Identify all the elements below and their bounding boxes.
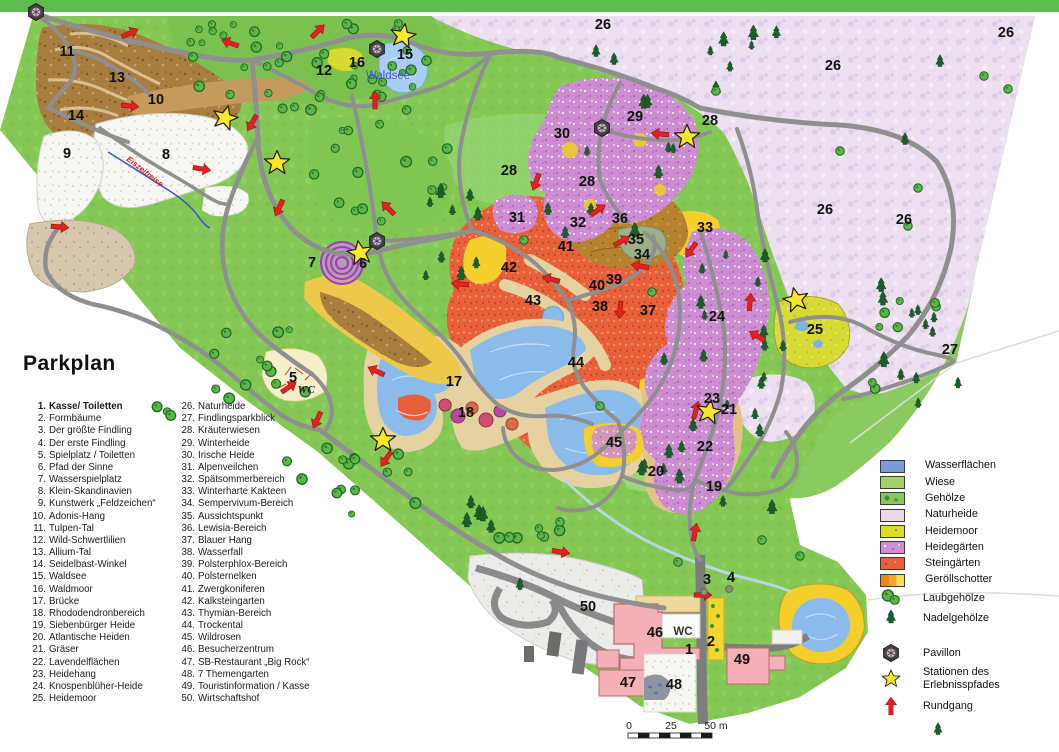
legend-item-15: 15.Waldsee — [28, 571, 156, 583]
top-green-band — [0, 0, 1059, 12]
laub-tree-icon — [315, 93, 324, 102]
yard-building — [524, 646, 534, 662]
map-number-11: 11 — [59, 44, 74, 60]
map-number-42: 42 — [501, 260, 517, 276]
heidegaerten-swatch — [880, 541, 905, 554]
laub-tree-icon — [322, 443, 332, 453]
laub-tree-icon — [332, 488, 342, 498]
legend-item-49: 49.Touristinformation / Kasse — [177, 681, 309, 693]
legend-item-33: 33.Winterharte Kakteen — [177, 486, 309, 498]
gehoelze-swatch — [880, 492, 905, 505]
map-number-26: 26 — [825, 58, 841, 74]
map-number-45: 45 — [606, 435, 622, 451]
map-number-35: 35 — [628, 232, 644, 248]
map-number-16: 16 — [349, 55, 365, 71]
map-number-20: 20 — [648, 464, 664, 480]
findling-stone — [701, 589, 708, 596]
laub-tree-icon — [331, 144, 339, 152]
legend-item-25: 25.Heidemoor — [28, 693, 156, 705]
laub-tree-icon — [251, 42, 261, 52]
laub-tree-icon — [241, 380, 251, 390]
laub-tree-icon — [220, 32, 227, 39]
laub-tree-icon — [409, 83, 416, 90]
legend-item-40: 40.Polsternelken — [177, 571, 309, 583]
legend-rundgang: Rundgang — [880, 695, 1056, 717]
nadel-icon — [880, 608, 902, 628]
laub-tree-icon — [353, 167, 363, 177]
laub-tree-icon — [208, 21, 215, 28]
legend-item-6: 6.Pfad der Sinne — [28, 462, 156, 474]
map-number-41: 41 — [558, 239, 574, 255]
laub-tree-icon — [896, 297, 903, 304]
legend-item-12: 12.Wild-Schwertlilien — [28, 535, 156, 547]
map-number-31: 31 — [509, 210, 525, 226]
laub-tree-icon — [306, 105, 316, 115]
legend-item-47: 47.SB-Restaurant „Big Rock“ — [177, 657, 309, 669]
pond-west-island — [398, 394, 431, 420]
map-number-38: 38 — [592, 299, 608, 315]
laub-tree-icon — [554, 525, 564, 535]
nadel-tree-icon — [934, 723, 942, 735]
map-number-46: 46 — [647, 625, 663, 641]
map-number-47: 47 — [620, 675, 636, 691]
laub-tree-icon — [535, 525, 542, 532]
scale-bar-segment — [649, 733, 660, 738]
legend-item-48: 48.7 Themengarten — [177, 669, 309, 681]
legend-item-16: 16.Waldmoor — [28, 584, 156, 596]
map-number-13: 13 — [109, 70, 125, 86]
legend-wiese: Wiese — [880, 474, 1056, 490]
legend-item-27: 27.Findlingsparkblick — [177, 413, 309, 425]
laub-tree-icon — [410, 498, 421, 509]
map-number-26: 26 — [817, 202, 833, 218]
legend-item-8: 8.Klein-Skandinavien — [28, 486, 156, 498]
legend-item-11: 11.Tulpen-Tal — [28, 523, 156, 535]
map-number-19: 19 — [706, 479, 722, 495]
scale-bar-segment — [639, 733, 650, 738]
map-number-49: 49 — [734, 652, 750, 668]
legend-pavillon: Pavillon — [880, 643, 1056, 663]
water-swatch — [880, 460, 905, 473]
laub-tree-icon — [286, 326, 292, 332]
laub-tree-icon — [320, 49, 329, 58]
laub-tree-icon — [1004, 85, 1012, 93]
laub-tree-icon — [401, 156, 412, 167]
map-number-28: 28 — [702, 113, 718, 129]
legend-item-26: 26.Naturheide — [177, 401, 309, 413]
map-number-23: 23 — [704, 391, 720, 407]
laub-tree-icon — [876, 323, 883, 330]
laub-tree-icon — [210, 349, 219, 358]
map-number-15: 15 — [397, 47, 413, 63]
laub-tree-icon — [980, 72, 988, 80]
map-number-9: 9 — [63, 146, 71, 162]
legend-item-5: 5.Spielplatz / Toiletten — [28, 450, 156, 462]
laub-tree-icon — [226, 90, 234, 98]
wc-label-center: WC — [673, 626, 692, 638]
laub-tree-icon — [494, 533, 505, 544]
map-number-26: 26 — [896, 212, 912, 228]
laub-tree-icon — [428, 157, 436, 165]
map-number-28: 28 — [579, 174, 595, 190]
map-number-2: 2 — [707, 634, 715, 650]
laub-tree-icon — [383, 468, 391, 476]
laub-tree-icon — [674, 558, 682, 566]
laub-tree-icon — [276, 43, 282, 49]
laub-tree-icon — [282, 52, 292, 62]
building-annex — [769, 656, 785, 670]
laub-tree-icon — [880, 308, 889, 317]
laub-tree-icon — [209, 27, 216, 34]
legend-item-13: 13.Allium-Tal — [28, 547, 156, 559]
legend-item-30: 30.Irische Heide — [177, 450, 309, 462]
legend-item-3: 3.Der größte Findling — [28, 425, 156, 437]
laub-tree-icon — [712, 87, 720, 95]
scale-end: 50 m — [704, 720, 728, 732]
scale-bar-segment — [702, 733, 713, 738]
legend-gehoelze: Gehölze — [880, 491, 1056, 507]
map-number-6: 6 — [359, 256, 367, 272]
map-number-25: 25 — [807, 322, 823, 338]
nadel-tree-icon — [954, 377, 962, 388]
wc-label-playground: WC — [297, 384, 315, 396]
legend-heidegaerten: Heidegärten — [880, 539, 1056, 555]
laub-tree-icon — [250, 27, 260, 37]
laub-tree-icon — [914, 184, 922, 192]
legend-item-46: 46.Besucherzentrum — [177, 644, 309, 656]
laub-tree-icon — [442, 144, 452, 154]
laub-tree-icon — [194, 81, 204, 91]
waldsee-label: Waldsee — [366, 70, 410, 82]
map-number-28: 28 — [501, 163, 517, 179]
map-number-22: 22 — [697, 439, 713, 455]
laub-tree-icon — [166, 411, 176, 421]
laub-tree-icon — [265, 89, 272, 96]
laub-tree-icon — [893, 323, 902, 332]
pavillon-icon — [880, 643, 902, 663]
legend-item-31: 31.Alpenveilchen — [177, 462, 309, 474]
pavilion-icon — [370, 41, 385, 58]
map-number-14: 14 — [68, 108, 84, 124]
legend-item-2: 2.Formbäume — [28, 413, 156, 425]
map-number-10: 10 — [148, 92, 164, 108]
map-number-3: 3 — [703, 572, 711, 588]
pavilion-icon — [595, 120, 610, 137]
laub-tree-icon — [241, 64, 248, 71]
legend-item-36: 36.Lewisia-Bereich — [177, 523, 309, 535]
parking-lot — [772, 630, 802, 644]
legend-col-1: 1.Kasse/ Toiletten2.Formbäume3.Der größt… — [28, 401, 156, 705]
map-number-21: 21 — [721, 402, 737, 418]
laub-tree-icon — [199, 40, 205, 46]
legend-item-4: 4.Der erste Findling — [28, 438, 156, 450]
map-number-30: 30 — [554, 126, 570, 142]
laub-tree-icon — [275, 59, 283, 67]
map-number-24: 24 — [709, 309, 725, 325]
laub-tree-icon — [537, 532, 544, 539]
map-number-39: 39 — [606, 272, 622, 288]
laub-tree-icon — [342, 19, 351, 28]
laub-tree-icon — [212, 385, 220, 393]
laub-tree-icon — [344, 126, 352, 134]
legend-item-42: 42.Kalksteingarten — [177, 596, 309, 608]
laub-tree-icon — [758, 536, 766, 544]
legend-item-9: 9.Kunstwerk „Feldzeichen“ — [28, 498, 156, 510]
legend-steingaerten: Steingärten — [880, 556, 1056, 572]
rundgang-icon — [880, 696, 902, 716]
legend-item-23: 23.Heidehang — [28, 669, 156, 681]
map-number-33: 33 — [697, 220, 713, 236]
legend-item-14: 14.Seidelbast-Winkel — [28, 559, 156, 571]
laub-tree-icon — [402, 106, 411, 115]
map-number-26: 26 — [595, 17, 611, 33]
laub-tree-icon — [291, 103, 299, 111]
scale-mid: 25 — [665, 720, 677, 732]
laub-tree-icon — [189, 52, 198, 61]
legend-nadel: Nadelgehölze — [880, 608, 1056, 628]
geroellschotter-swatch — [880, 574, 905, 587]
laub-tree-icon — [351, 486, 360, 495]
map-number-27: 27 — [942, 342, 958, 358]
map-number-40: 40 — [589, 278, 605, 294]
legend-item-41: 41.Zwergkoniferen — [177, 584, 309, 596]
page-title: Parkplan — [23, 352, 116, 376]
legend-item-35: 35.Aussichtspunkt — [177, 511, 309, 523]
map-number-29: 29 — [627, 109, 643, 125]
laub-tree-icon — [263, 62, 271, 70]
laub-tree-icon — [347, 79, 357, 89]
laub-tree-icon — [422, 56, 431, 65]
map-number-12: 12 — [316, 63, 332, 79]
map-number-26: 26 — [998, 25, 1014, 41]
map-number-4: 4 — [727, 570, 735, 586]
legend-item-10: 10.Adonis-Hang — [28, 511, 156, 523]
park-map-page: 1234567891011121314151617181920212223242… — [0, 0, 1059, 752]
laub-tree-icon — [505, 533, 515, 543]
legend-water: Wasserflächen — [880, 458, 1056, 474]
moor-pool — [813, 340, 823, 348]
laub-tree-icon — [230, 21, 236, 27]
legend-item-20: 20.Atlantische Heiden — [28, 632, 156, 644]
laub-tree-icon — [596, 402, 604, 410]
color-legend: WasserflächenWieseGehölzeNaturheideHeide… — [880, 458, 1056, 717]
heidemoor-swatch — [880, 525, 905, 538]
station-icon — [880, 669, 902, 689]
laub-tree-icon — [358, 204, 368, 214]
map-number-43: 43 — [525, 293, 541, 309]
legend-item-39: 39.Polsterphlox-Bereich — [177, 559, 309, 571]
laub-tree-icon — [428, 186, 436, 194]
pavilion-icon — [29, 4, 44, 21]
legend-item-34: 34.Sempervivum-Bereich — [177, 498, 309, 510]
map-number-50: 50 — [580, 599, 596, 615]
legend-item-32: 32.Spätsommerbereich — [177, 474, 309, 486]
legend-item-43: 43.Thymian-Bereich — [177, 608, 309, 620]
legend-item-19: 19.Siebenbürger Heide — [28, 620, 156, 632]
laub-tree-icon — [376, 120, 384, 128]
map-number-37: 37 — [640, 303, 656, 319]
laub-tree-icon — [393, 449, 403, 459]
legend-laub: Laubgehölze — [880, 588, 1056, 608]
laub-tree-icon — [350, 455, 359, 464]
laub-icon — [880, 588, 902, 608]
laub-tree-icon — [310, 170, 319, 179]
laub-tree-icon — [520, 236, 528, 244]
legend-item-22: 22.Lavendelflächen — [28, 657, 156, 669]
map-number-5: 5 — [289, 370, 297, 386]
laub-tree-icon — [931, 299, 940, 308]
findling-stone — [726, 586, 733, 593]
laub-tree-icon — [556, 518, 564, 526]
scale-bar-segment — [660, 733, 671, 738]
map-number-34: 34 — [634, 247, 650, 263]
laub-tree-icon — [272, 379, 281, 388]
laub-tree-icon — [334, 198, 343, 207]
legend-item-28: 28.Kräuterwiesen — [177, 425, 309, 437]
laub-tree-icon — [648, 288, 656, 296]
laub-tree-icon — [273, 327, 284, 338]
legend-naturheide: Naturheide — [880, 507, 1056, 523]
legend-item-1: 1.Kasse/ Toiletten — [28, 401, 156, 413]
legend-item-17: 17.Brücke — [28, 596, 156, 608]
laub-tree-icon — [195, 26, 202, 33]
map-number-36: 36 — [612, 211, 628, 227]
laub-tree-icon — [404, 468, 412, 476]
laub-tree-icon — [796, 552, 804, 560]
legend-item-45: 45.Wildrosen — [177, 632, 309, 644]
legend-item-7: 7.Wasserspielplatz — [28, 474, 156, 486]
steingaerten-swatch — [880, 557, 905, 570]
map-number-18: 18 — [458, 405, 474, 421]
map-number-1: 1 — [685, 642, 693, 658]
scale-bar-segment — [628, 733, 639, 738]
legend-item-29: 29.Winterheide — [177, 438, 309, 450]
map-number-44: 44 — [568, 355, 584, 371]
scale-bar — [628, 733, 712, 738]
laub-tree-icon — [836, 147, 844, 155]
legend-geroellschotter: Geröllschotter — [880, 572, 1056, 588]
laub-tree-icon — [278, 104, 287, 113]
laub-tree-icon — [377, 217, 385, 225]
laub-tree-icon — [262, 361, 272, 371]
building-restaurant — [597, 650, 619, 668]
legend-item-21: 21.Gräser — [28, 644, 156, 656]
legend-item-37: 37.Blauer Hang — [177, 535, 309, 547]
legend-station: Stationen des Erlebnisspfades — [880, 663, 1056, 695]
map-number-17: 17 — [446, 374, 462, 390]
pavilion-icon — [370, 233, 385, 250]
scale-zero: 0 — [626, 720, 632, 732]
laub-tree-icon — [187, 38, 195, 46]
map-number-7: 7 — [308, 255, 316, 271]
naturheide-swatch — [880, 509, 905, 522]
scale-bar-segment — [691, 733, 702, 738]
scale-bar-segment — [681, 733, 692, 738]
legend-col-2: 26.Naturheide27.Findlingsparkblick28.Krä… — [177, 401, 309, 705]
scale-bar-segment — [670, 733, 681, 738]
laub-tree-icon — [339, 456, 347, 464]
map-number-32: 32 — [570, 215, 586, 231]
legend-item-38: 38.Wasserfall — [177, 547, 309, 559]
legend-heidemoor: Heidemoor — [880, 523, 1056, 539]
legend-item-50: 50.Wirtschaftshof — [177, 693, 309, 705]
laub-tree-icon — [869, 379, 877, 387]
map-number-48: 48 — [666, 677, 682, 693]
legend-item-44: 44.Trockental — [177, 620, 309, 632]
laub-tree-icon — [256, 356, 263, 363]
laub-tree-icon — [222, 328, 231, 337]
laub-tree-icon — [348, 511, 354, 517]
legend-item-24: 24.Knospenblüher-Heide — [28, 681, 156, 693]
wiese-swatch — [880, 476, 905, 489]
legend-item-18: 18.Rhododendronbereich — [28, 608, 156, 620]
map-number-8: 8 — [162, 147, 170, 163]
